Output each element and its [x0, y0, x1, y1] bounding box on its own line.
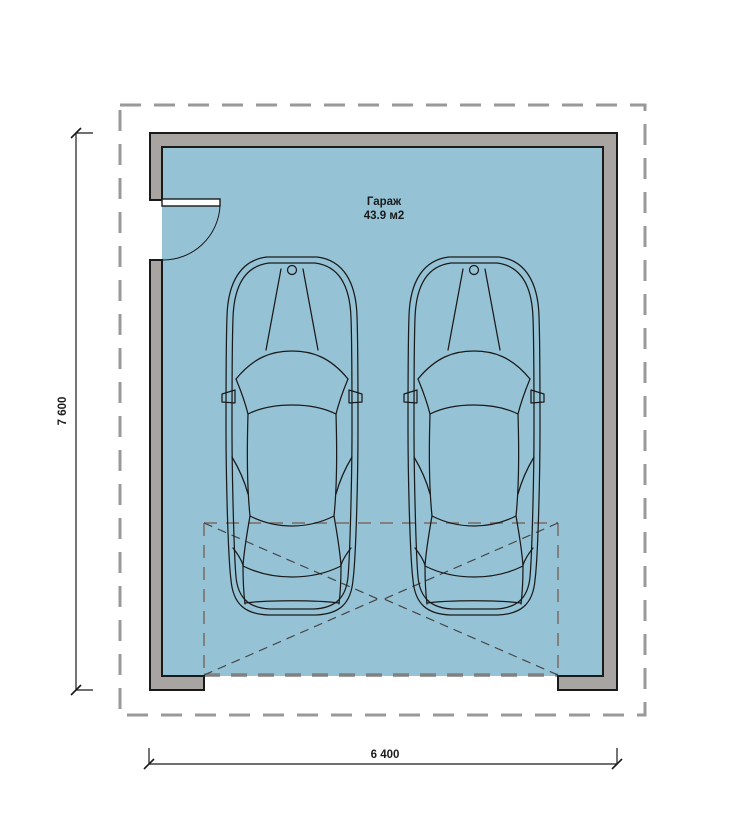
dim-label-horizontal: 6 400: [371, 749, 400, 761]
entry-door-leaf: [162, 199, 220, 206]
floor-plan-canvas: 7 600 6 400 Гараж 43.9 м2: [0, 0, 744, 837]
room-area-label: 43.9 м2: [364, 210, 404, 222]
room-name-label: Гараж: [367, 196, 402, 208]
dimension-vertical: 7 600: [57, 128, 93, 695]
dimension-horizontal: 6 400: [144, 748, 622, 769]
garage-floor: [162, 147, 603, 676]
dimension-vertical-line: [76, 133, 93, 690]
dim-label-vertical: 7 600: [57, 397, 69, 426]
floor-plan-drawing: 7 600 6 400 Гараж 43.9 м2: [0, 0, 744, 837]
